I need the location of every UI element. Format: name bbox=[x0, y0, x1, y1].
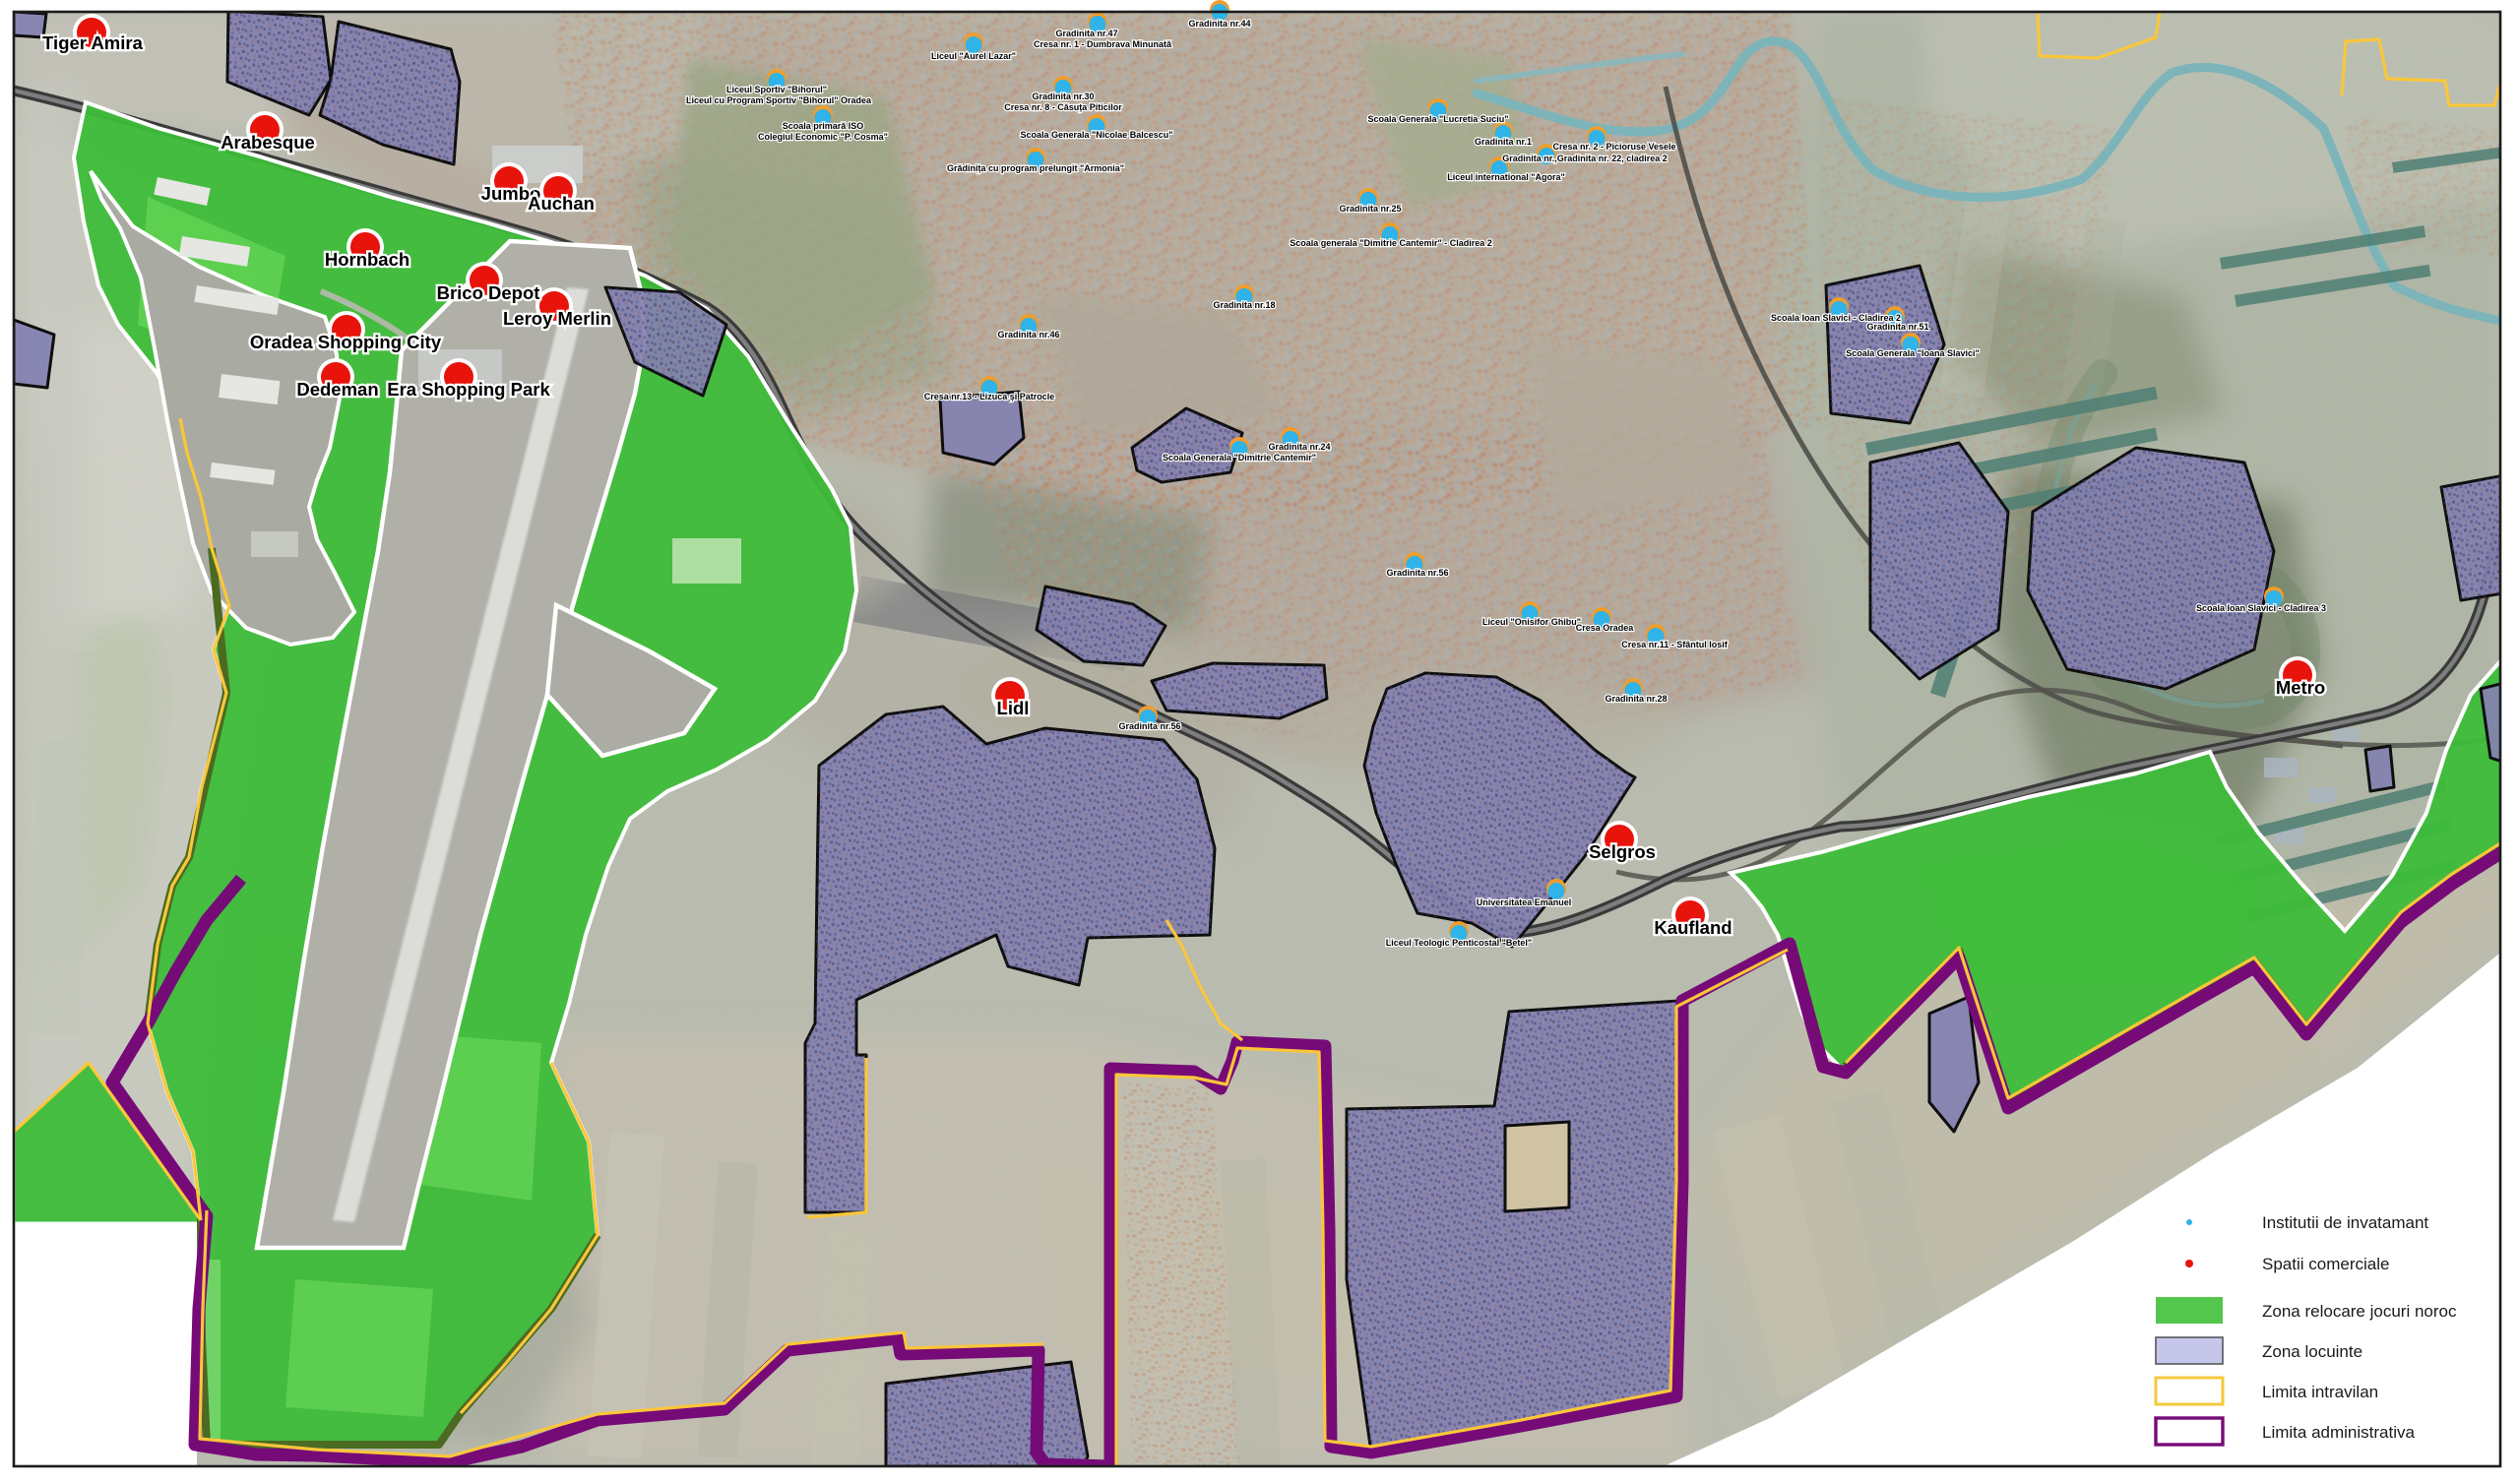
svg-text:Grădinița cu program prelungit: Grădinița cu program prelungit "Armonia" bbox=[947, 163, 1124, 173]
svg-text:Gradinita nr.25: Gradinita nr.25 bbox=[1339, 204, 1401, 214]
svg-text:Brico Depot: Brico Depot bbox=[437, 282, 540, 303]
svg-text:Scoala Generala "Nicolae Balce: Scoala Generala "Nicolae Balcescu" bbox=[1020, 130, 1172, 140]
svg-text:Scoala Generala "Dimitrie Cant: Scoala Generala "Dimitrie Cantemir" bbox=[1163, 453, 1316, 463]
svg-text:Arabesque: Arabesque bbox=[220, 132, 315, 153]
svg-text:Spatii comerciale: Spatii comerciale bbox=[2262, 1255, 2389, 1273]
svg-text:Kaufland: Kaufland bbox=[1654, 917, 1732, 938]
svg-text:Liceul "Aurel Lazar": Liceul "Aurel Lazar" bbox=[931, 51, 1016, 61]
svg-text:Universitatea Emanuel: Universitatea Emanuel bbox=[1477, 897, 1572, 907]
svg-text:Gradinita nr.56: Gradinita nr.56 bbox=[1386, 568, 1448, 578]
svg-text:Gradinita nr.24: Gradinita nr.24 bbox=[1268, 442, 1330, 452]
svg-text:Cresa nr.11 - Sfântul Iosif: Cresa nr.11 - Sfântul Iosif bbox=[1621, 640, 1729, 649]
svg-text:Zona relocare jocuri noroc: Zona relocare jocuri noroc bbox=[2262, 1302, 2457, 1321]
svg-text:Gradinita nr.28: Gradinita nr.28 bbox=[1605, 694, 1667, 704]
svg-text:Scoala generala "Dimitrie Cant: Scoala generala "Dimitrie Cantemir" - Cl… bbox=[1290, 238, 1492, 248]
svg-text:Cresa Oradea: Cresa Oradea bbox=[1576, 623, 1635, 633]
svg-text:Institutii de invatamant: Institutii de invatamant bbox=[2262, 1213, 2428, 1232]
svg-text:Liceul "Onisifor Ghibu": Liceul "Onisifor Ghibu" bbox=[1482, 617, 1581, 627]
svg-text:Scoala Generala "Ioana Slavici: Scoala Generala "Ioana Slavici" bbox=[1846, 348, 1980, 358]
svg-text:Liceul cu Program Sportiv "Bih: Liceul cu Program Sportiv "Bihorul" Orad… bbox=[686, 95, 872, 105]
svg-text:Era Shopping Park: Era Shopping Park bbox=[387, 379, 550, 400]
svg-text:Liceul international "Agora": Liceul international "Agora" bbox=[1447, 172, 1565, 182]
svg-text:Liceul Sportiv "Bihorul": Liceul Sportiv "Bihorul" bbox=[726, 85, 827, 94]
svg-text:Dedeman: Dedeman bbox=[296, 379, 378, 400]
svg-text:Cresa nr.13 - Lizuca și Patroc: Cresa nr.13 - Lizuca și Patrocle bbox=[924, 392, 1055, 402]
svg-text:Auchan: Auchan bbox=[528, 193, 595, 214]
svg-text:Tiger Amira: Tiger Amira bbox=[42, 32, 143, 53]
svg-text:Colegiul Economic "P. Cosma": Colegiul Economic "P. Cosma" bbox=[758, 132, 888, 142]
svg-text:Cresa nr. 2 - Picioruse Vesele: Cresa nr. 2 - Picioruse Vesele bbox=[1552, 142, 1675, 152]
svg-text:Scoala Generala "Lucretia Suci: Scoala Generala "Lucretia Suciu" bbox=[1367, 114, 1508, 124]
svg-text:Gradinita nr.47: Gradinita nr.47 bbox=[1055, 29, 1117, 38]
svg-text:Gradinita nr.18: Gradinita nr.18 bbox=[1213, 300, 1275, 310]
svg-text:Metro: Metro bbox=[2276, 677, 2325, 698]
svg-text:Liceul Teologic Penticostal "B: Liceul Teologic Penticostal "Betel" bbox=[1386, 938, 1532, 948]
svg-text:Zona locuinte: Zona locuinte bbox=[2262, 1342, 2362, 1361]
svg-text:Gradinita nr.44: Gradinita nr.44 bbox=[1188, 19, 1250, 29]
svg-text:Scoala Ioan Slavici - Cladirea: Scoala Ioan Slavici - Cladirea 3 bbox=[2196, 603, 2326, 613]
svg-text:Selgros: Selgros bbox=[1589, 841, 1656, 862]
svg-text:Cresa nr. 1 - Dumbrava Minunat: Cresa nr. 1 - Dumbrava Minunată bbox=[1034, 39, 1172, 49]
svg-text:Gradinita nr.30: Gradinita nr.30 bbox=[1032, 92, 1094, 101]
svg-text:Scoala primară ISO: Scoala primară ISO bbox=[783, 121, 864, 131]
svg-text:Lidl: Lidl bbox=[997, 698, 1030, 718]
svg-text:Cresa nr. 8 - Căsuța Piticilor: Cresa nr. 8 - Căsuța Piticilor bbox=[1004, 102, 1122, 112]
svg-text:Limita administrativa: Limita administrativa bbox=[2262, 1423, 2415, 1442]
svg-text:Leroy Merlin: Leroy Merlin bbox=[503, 308, 611, 329]
svg-text:Gradinita nr.46: Gradinita nr.46 bbox=[997, 330, 1059, 340]
svg-text:Gradinita nr.56: Gradinita nr.56 bbox=[1118, 721, 1180, 731]
svg-text:Gradinita nr.1: Gradinita nr.1 bbox=[1475, 137, 1532, 147]
svg-text:Limita intravilan: Limita intravilan bbox=[2262, 1383, 2378, 1401]
svg-text:Oradea Shopping City: Oradea Shopping City bbox=[250, 332, 442, 352]
svg-text:Gradinita nr.,Gradinita nr. 22: Gradinita nr.,Gradinita nr. 22, cladirea… bbox=[1502, 154, 1668, 163]
svg-text:Gradinita nr.51: Gradinita nr.51 bbox=[1866, 322, 1928, 332]
svg-text:Hornbach: Hornbach bbox=[325, 249, 409, 270]
